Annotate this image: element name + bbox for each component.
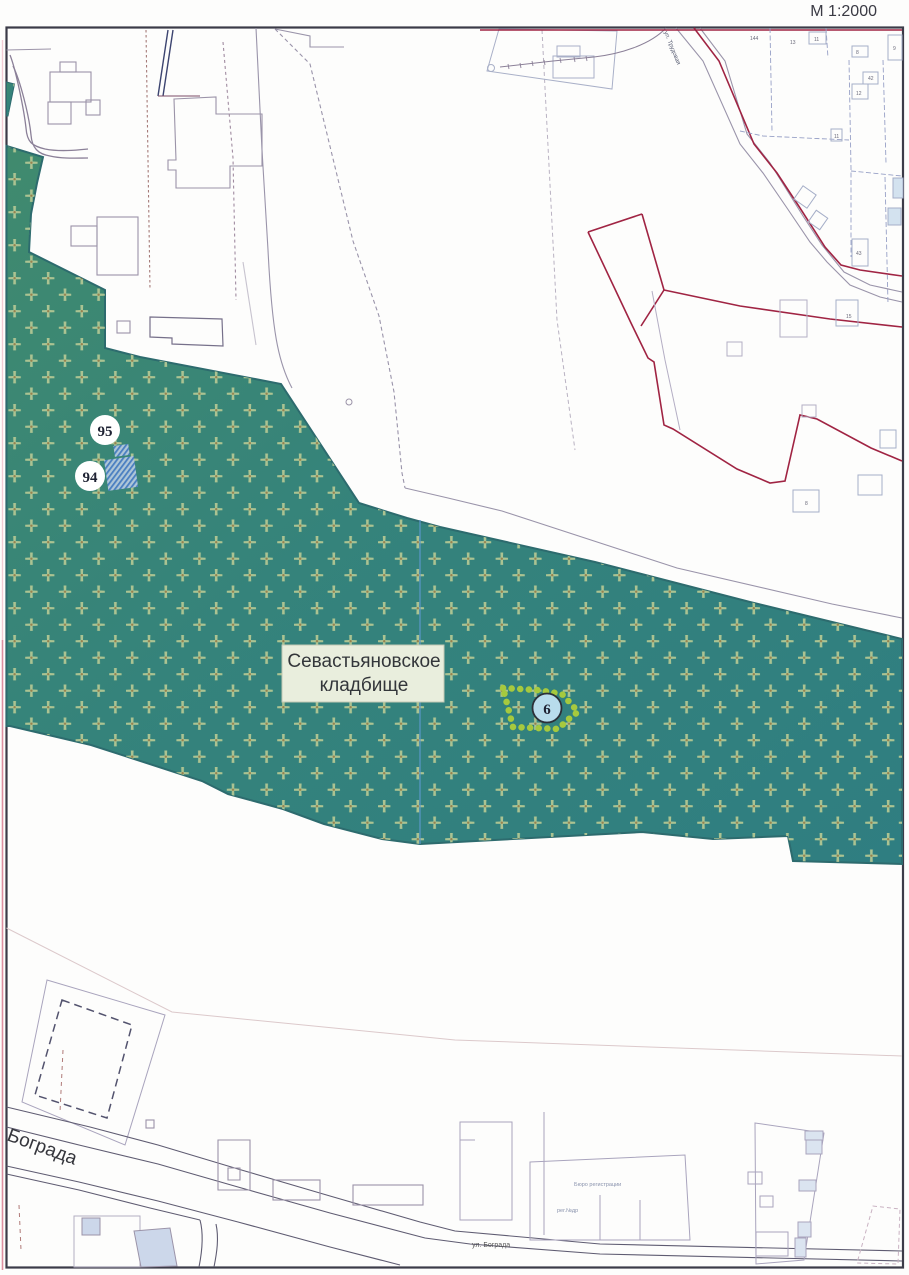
svg-text:8: 8 [805, 501, 808, 507]
svg-text:8: 8 [856, 50, 859, 56]
svg-text:11: 11 [834, 134, 839, 140]
svg-text:М 1:2000: М 1:2000 [810, 3, 877, 20]
svg-text:15: 15 [846, 314, 852, 320]
svg-text:Севастьяновское: Севастьяновское [287, 651, 440, 672]
svg-text:144: 144 [750, 36, 759, 42]
svg-text:ул. Бограда: ул. Бограда [472, 1242, 510, 1249]
svg-text:94: 94 [83, 470, 99, 486]
svg-text:13: 13 [790, 40, 796, 46]
svg-text:рег.№др: рег.№др [557, 1208, 578, 1214]
svg-text:11: 11 [814, 37, 819, 43]
svg-text:95: 95 [98, 424, 113, 440]
svg-text:кладбище: кладбище [320, 675, 409, 696]
svg-text:43: 43 [856, 251, 862, 257]
svg-text:Бюро регистрации: Бюро регистрации [574, 1182, 621, 1188]
svg-text:9: 9 [893, 46, 896, 52]
svg-text:6: 6 [543, 702, 551, 718]
svg-text:42: 42 [868, 76, 874, 82]
svg-text:12: 12 [856, 91, 862, 97]
